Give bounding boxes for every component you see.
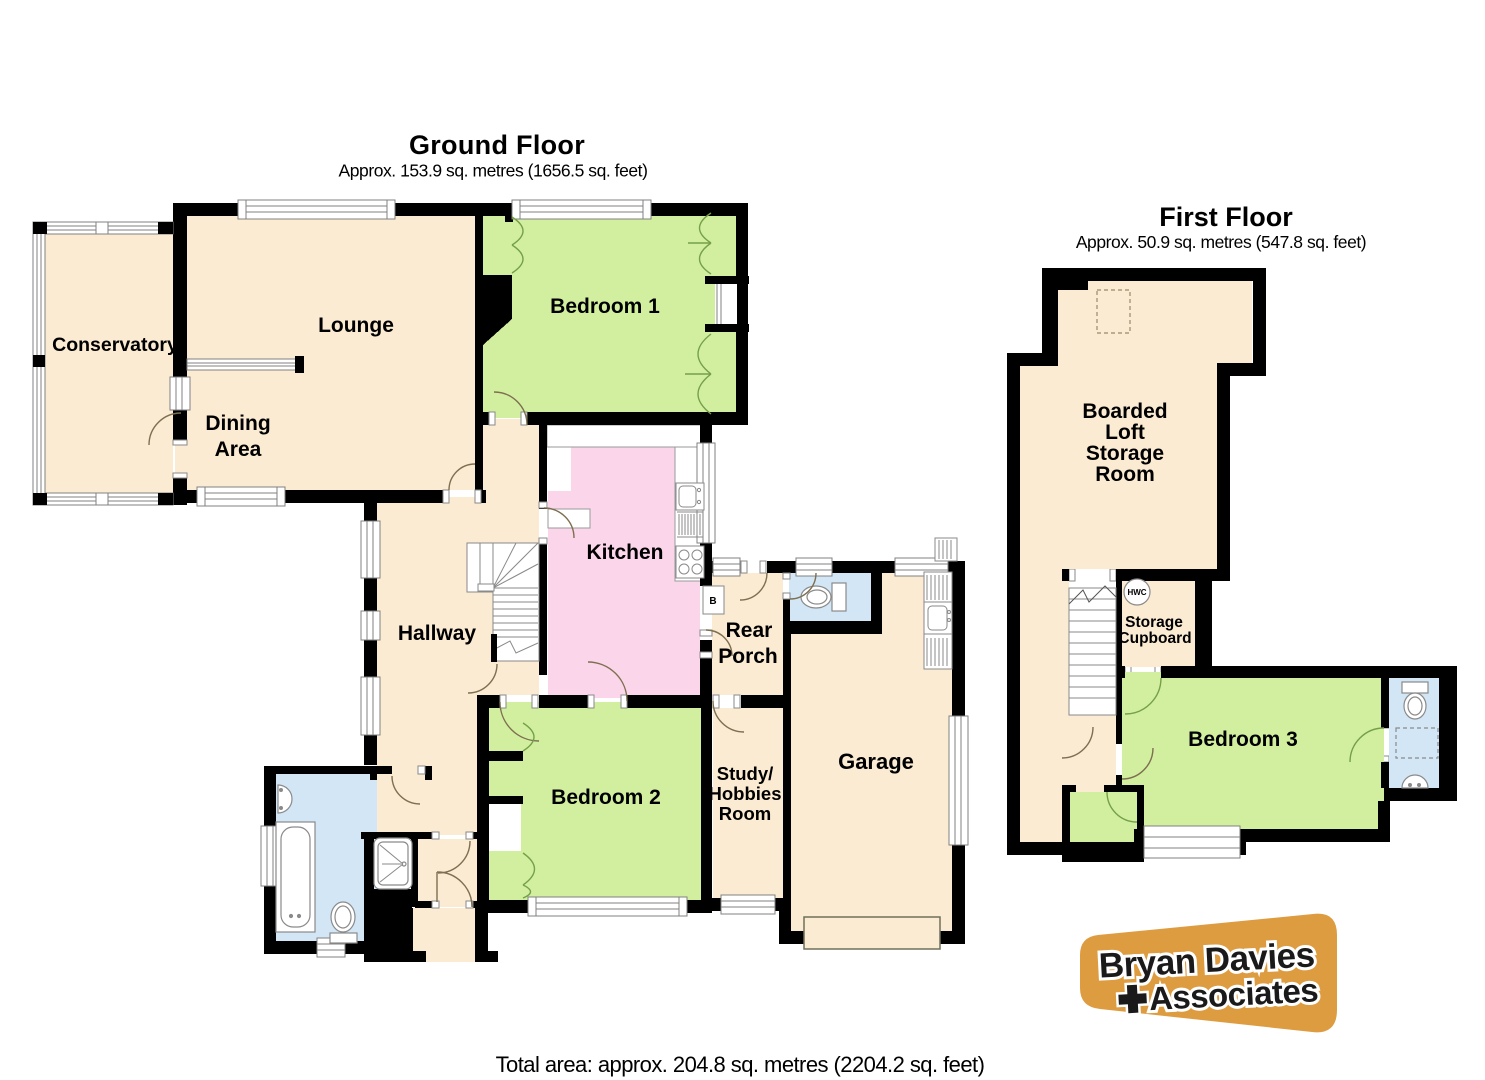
svg-text:Dining: Dining	[205, 412, 270, 435]
svg-text:B: B	[709, 596, 716, 607]
svg-text:Approx. 50.9 sq. metres (547.8: Approx. 50.9 sq. metres (547.8 sq. feet)	[1076, 232, 1366, 252]
svg-text:Rear: Rear	[726, 619, 773, 642]
svg-text:Total area: approx. 204.8 sq.: Total area: approx. 204.8 sq. metres (22…	[496, 1052, 985, 1077]
svg-text:Hallway: Hallway	[398, 622, 477, 645]
svg-text:Porch: Porch	[718, 645, 778, 668]
svg-text:Boarded: Boarded	[1082, 400, 1167, 423]
svg-text:Loft: Loft	[1105, 421, 1145, 444]
svg-text:Garage: Garage	[838, 749, 914, 774]
svg-text:Hobbies: Hobbies	[709, 783, 782, 804]
svg-text:Study/: Study/	[717, 763, 774, 784]
svg-text:Bedroom 2: Bedroom 2	[551, 786, 661, 809]
svg-text:Bedroom 3: Bedroom 3	[1188, 728, 1298, 751]
svg-text:HWC: HWC	[1127, 588, 1146, 597]
svg-text:Lounge: Lounge	[318, 314, 394, 337]
svg-text:Room: Room	[719, 803, 771, 824]
svg-text:Storage: Storage	[1086, 442, 1164, 465]
svg-text:Storage: Storage	[1125, 614, 1183, 631]
svg-text:Bedroom 1: Bedroom 1	[550, 295, 660, 318]
svg-text:Approx. 153.9 sq. metres (1656: Approx. 153.9 sq. metres (1656.5 sq. fee…	[339, 161, 648, 181]
svg-text:First Floor: First Floor	[1159, 202, 1293, 232]
svg-text:Ground Floor: Ground Floor	[409, 130, 585, 160]
svg-text:Kitchen: Kitchen	[586, 541, 663, 564]
svg-text:Room: Room	[1095, 463, 1155, 486]
svg-text:Cupboard: Cupboard	[1118, 630, 1191, 647]
svg-text:Conservatory: Conservatory	[52, 334, 178, 356]
svg-text:Area: Area	[215, 438, 262, 461]
